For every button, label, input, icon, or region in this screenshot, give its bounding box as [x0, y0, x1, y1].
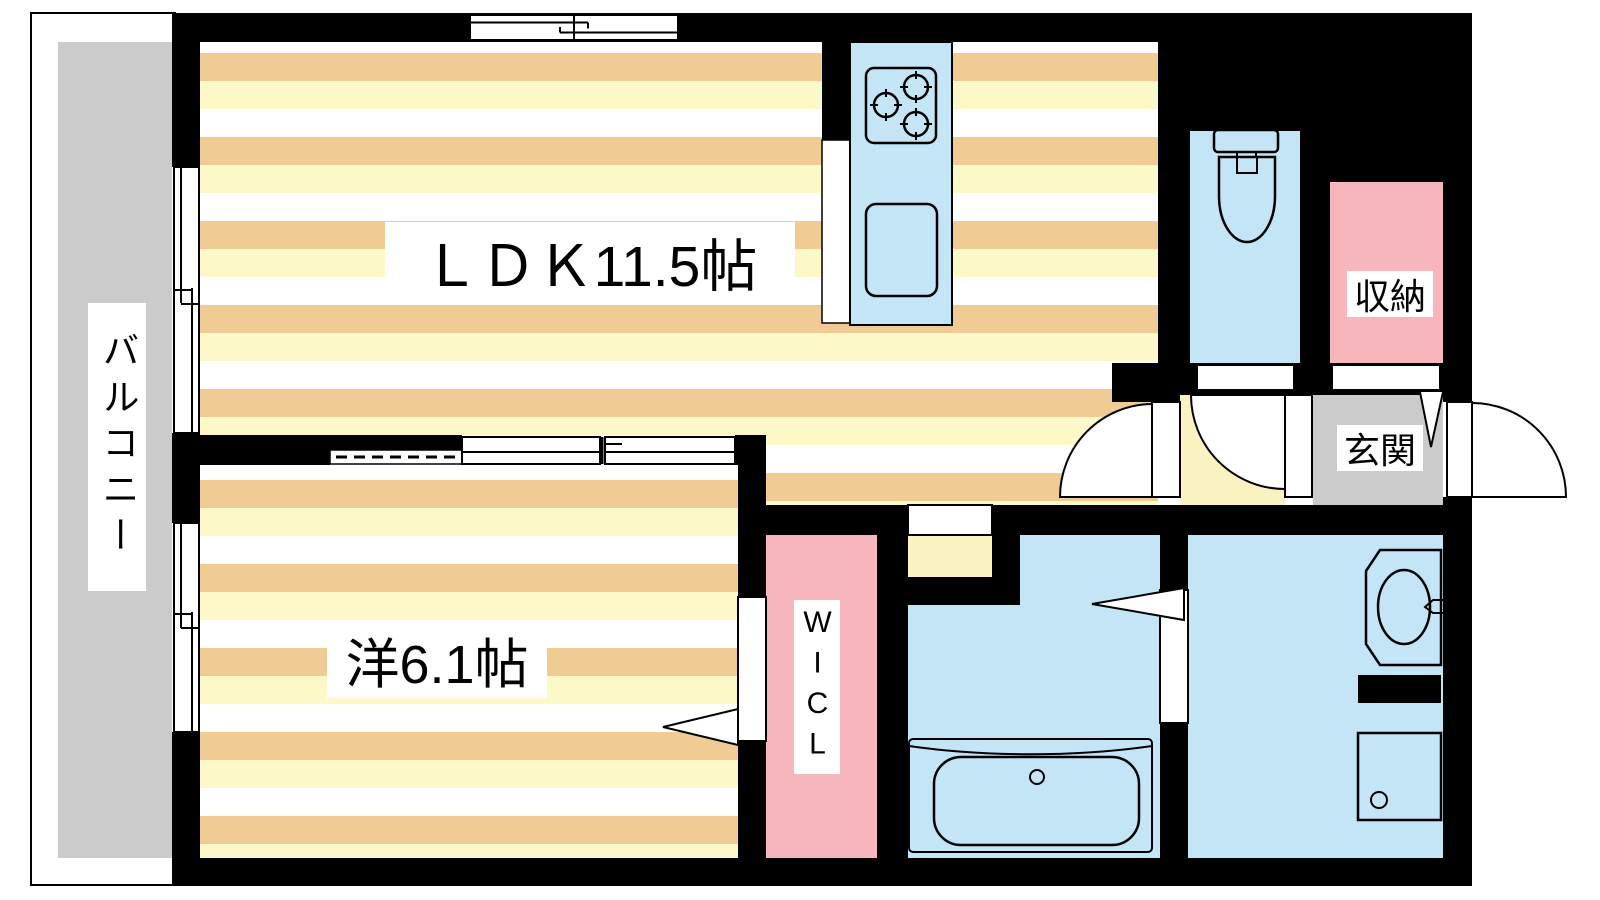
wall-top — [172, 13, 1472, 42]
bedroom-label: 洋6.1帖 — [327, 620, 547, 698]
bathroom-floor-2 — [908, 605, 1020, 858]
toilet-door-opening — [1197, 365, 1294, 390]
sliding-panel-left — [462, 437, 600, 464]
wall-washer-separator — [1358, 675, 1441, 703]
wall-closet-bar — [330, 435, 462, 450]
window-balcony-bedroom-icon — [174, 523, 199, 732]
window-balcony-ldk-icon — [174, 167, 199, 433]
wall-above-toilet — [1190, 42, 1300, 131]
front-door-leaf — [1447, 402, 1472, 497]
ldk-door-leaf — [1152, 402, 1180, 497]
wall-right-2 — [1443, 497, 1472, 886]
entrance-label: 玄関 — [1337, 425, 1423, 471]
wall-kitchen-stub — [822, 42, 850, 140]
hall-entrance-leaf — [1285, 395, 1312, 497]
floor-plan: ＬＤＫ11.5帖 洋6.1帖 WICL 収納 玄関 バルコニー — [0, 0, 1600, 900]
front-door-swing-icon — [1472, 403, 1566, 497]
ldk-label: ＬＤＫ11.5帖 — [385, 222, 795, 302]
kitchen-side-panel — [822, 140, 850, 323]
wall-mid-band — [738, 505, 1472, 535]
wicl-label: WICL — [794, 600, 840, 774]
storage-label: 収納 — [1347, 271, 1433, 317]
alcove-opening — [908, 505, 992, 535]
alcove-floor — [908, 535, 992, 577]
toilet-floor — [1190, 131, 1300, 363]
wall-left-1 — [172, 13, 200, 167]
balcony-label: バルコニー — [88, 303, 146, 591]
wall-ldk-stub — [1112, 363, 1180, 402]
wall-toilet-left — [1158, 42, 1190, 395]
wall-bedroom-top-1 — [172, 435, 330, 465]
wicl-door-opening — [738, 597, 766, 741]
wall-wicl-right — [877, 505, 908, 858]
wall-bottom — [172, 858, 1472, 886]
window-top-icon — [470, 15, 678, 40]
wall-bath-notch-h — [908, 577, 1020, 605]
wall-above-storage — [1330, 42, 1443, 182]
wall-right-1 — [1443, 13, 1472, 402]
storage-door-opening — [1332, 365, 1440, 390]
wall-toilet-storage — [1300, 42, 1330, 395]
sliding-panel-right — [605, 437, 735, 464]
